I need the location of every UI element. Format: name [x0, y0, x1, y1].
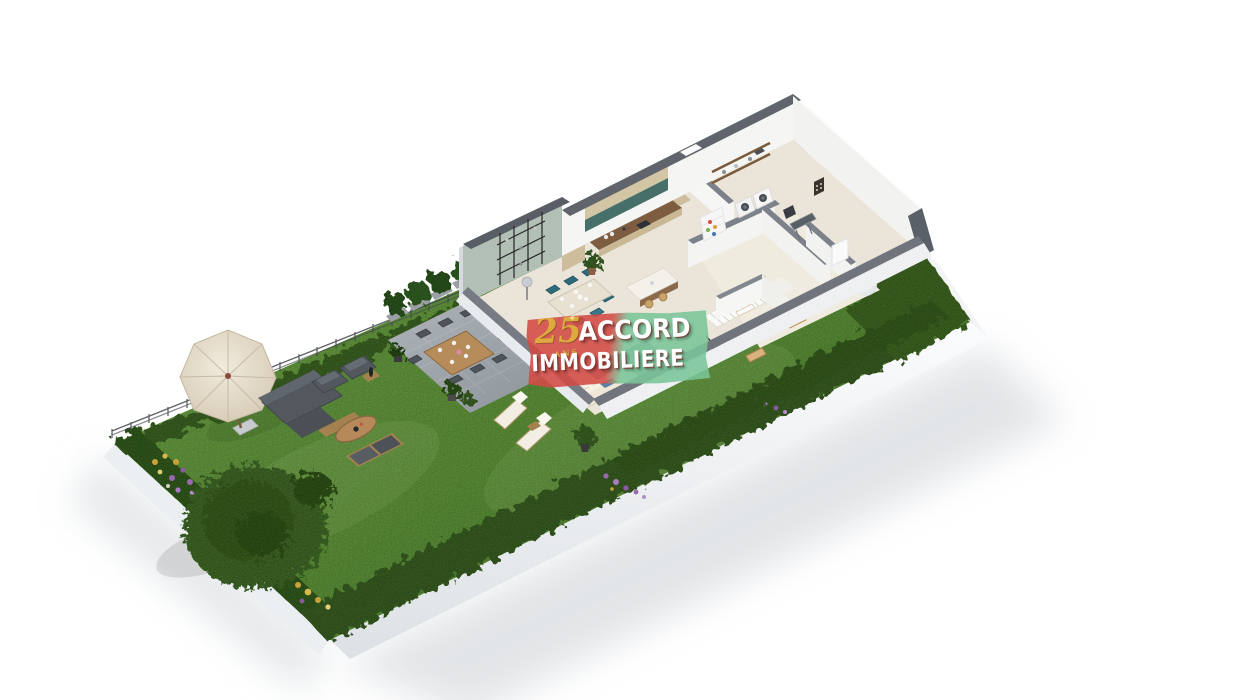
floorplan-render: 25 ✦ ANS ACCORD IMMOBILIERE — [0, 0, 1244, 700]
watermark-line2: IMMOBILIERE — [531, 345, 685, 377]
watermark-line1: ACCORD — [578, 313, 691, 347]
garden-bush — [292, 472, 334, 506]
watermark-banner: 25 ✦ ANS ACCORD IMMOBILIERE — [526, 310, 711, 389]
wine-bottle — [369, 367, 373, 377]
